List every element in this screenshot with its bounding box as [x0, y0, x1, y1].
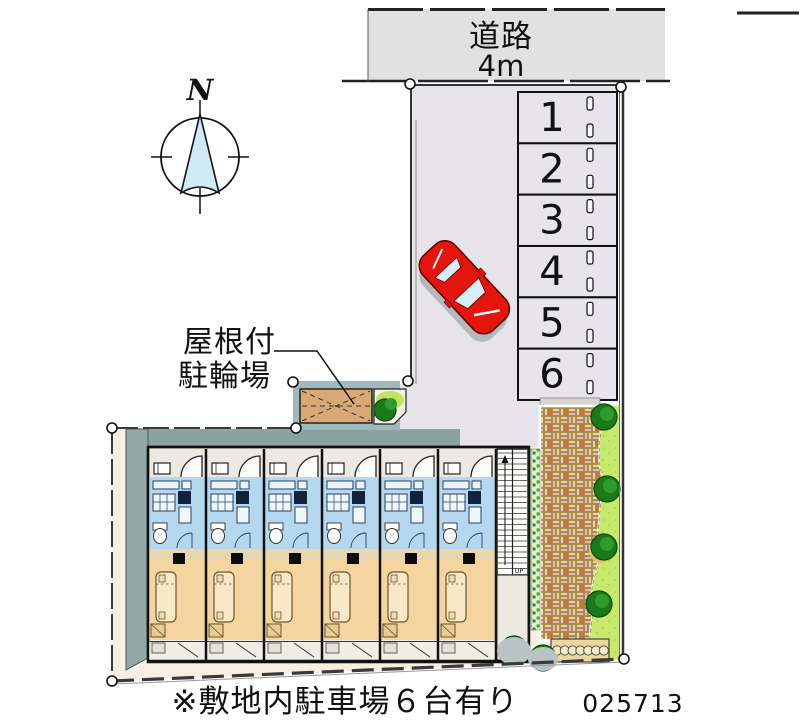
parking-area: 1 2 3 4 5 6 — [518, 92, 617, 400]
building-unit — [323, 456, 379, 660]
toilet — [444, 529, 457, 544]
building-unit — [207, 456, 263, 660]
parking-stall-number: 3 — [539, 198, 564, 244]
parking-stall-number: 6 — [539, 352, 564, 398]
balcony-unit-box — [210, 643, 223, 653]
toilet — [386, 529, 399, 544]
parking-stall-number: 4 — [539, 249, 564, 295]
bush-icon — [591, 404, 617, 430]
boundary-point — [616, 82, 626, 92]
balcony-unit-box — [268, 643, 281, 653]
parking-stall: 3 — [518, 195, 617, 246]
site-note: ※敷地内駐車場６台有り — [172, 684, 519, 720]
hedge-strip — [531, 449, 540, 630]
toilet — [154, 529, 167, 544]
balcony-unit-box — [442, 643, 455, 653]
building-unit — [149, 456, 205, 660]
balcony-unit-box — [152, 643, 165, 653]
compass-north-label: N — [186, 73, 215, 107]
bicycle-parking — [293, 381, 406, 430]
parking-stall: 4 — [518, 246, 617, 297]
plan-number: 025713 — [582, 689, 683, 718]
building: UP — [148, 447, 529, 662]
building-left-wall — [126, 429, 148, 670]
building-unit — [439, 456, 495, 660]
parking-stall-number: 2 — [539, 146, 564, 192]
parking-stall: 1 — [518, 92, 617, 143]
boundary-point — [107, 676, 117, 686]
building-unit — [265, 456, 321, 660]
boundary-point — [619, 654, 629, 664]
site-plan: 道路 4m 1 2 3 4 5 6 — [0, 0, 800, 727]
building-unit — [381, 456, 437, 660]
boundary-point — [405, 79, 415, 89]
balcony-unit-box — [326, 643, 339, 653]
staircase: UP — [497, 449, 528, 660]
toilet — [270, 529, 283, 544]
bush-icon — [594, 476, 620, 502]
boundary-point — [403, 376, 413, 386]
bush-highlight — [385, 398, 397, 410]
toilet — [328, 529, 341, 544]
stair-up-label: UP — [515, 567, 524, 575]
bicycle-parking-label-line2: 駐輪場 — [178, 359, 271, 394]
site-plan-image: 道路 4m 1 2 3 4 5 6 — [0, 0, 800, 727]
parking-stall: 2 — [518, 143, 617, 194]
parking-stall-number: 5 — [539, 300, 564, 346]
boundary-point — [107, 423, 117, 433]
toilet — [212, 529, 225, 544]
parking-stall: 5 — [518, 297, 617, 348]
balcony-unit-box — [384, 643, 397, 653]
boundary-point — [291, 423, 301, 433]
road: 道路 4m — [342, 9, 799, 83]
bush-icon — [591, 534, 617, 560]
bicycle-parking-label-line1: 屋根付 — [183, 325, 276, 360]
parking-stall-number: 1 — [539, 95, 564, 141]
compass-icon: N — [151, 73, 249, 214]
bush-icon — [586, 591, 612, 617]
parking-stall: 6 — [518, 349, 617, 400]
boundary-point — [288, 377, 298, 387]
road-width-label: 4m — [478, 49, 525, 83]
